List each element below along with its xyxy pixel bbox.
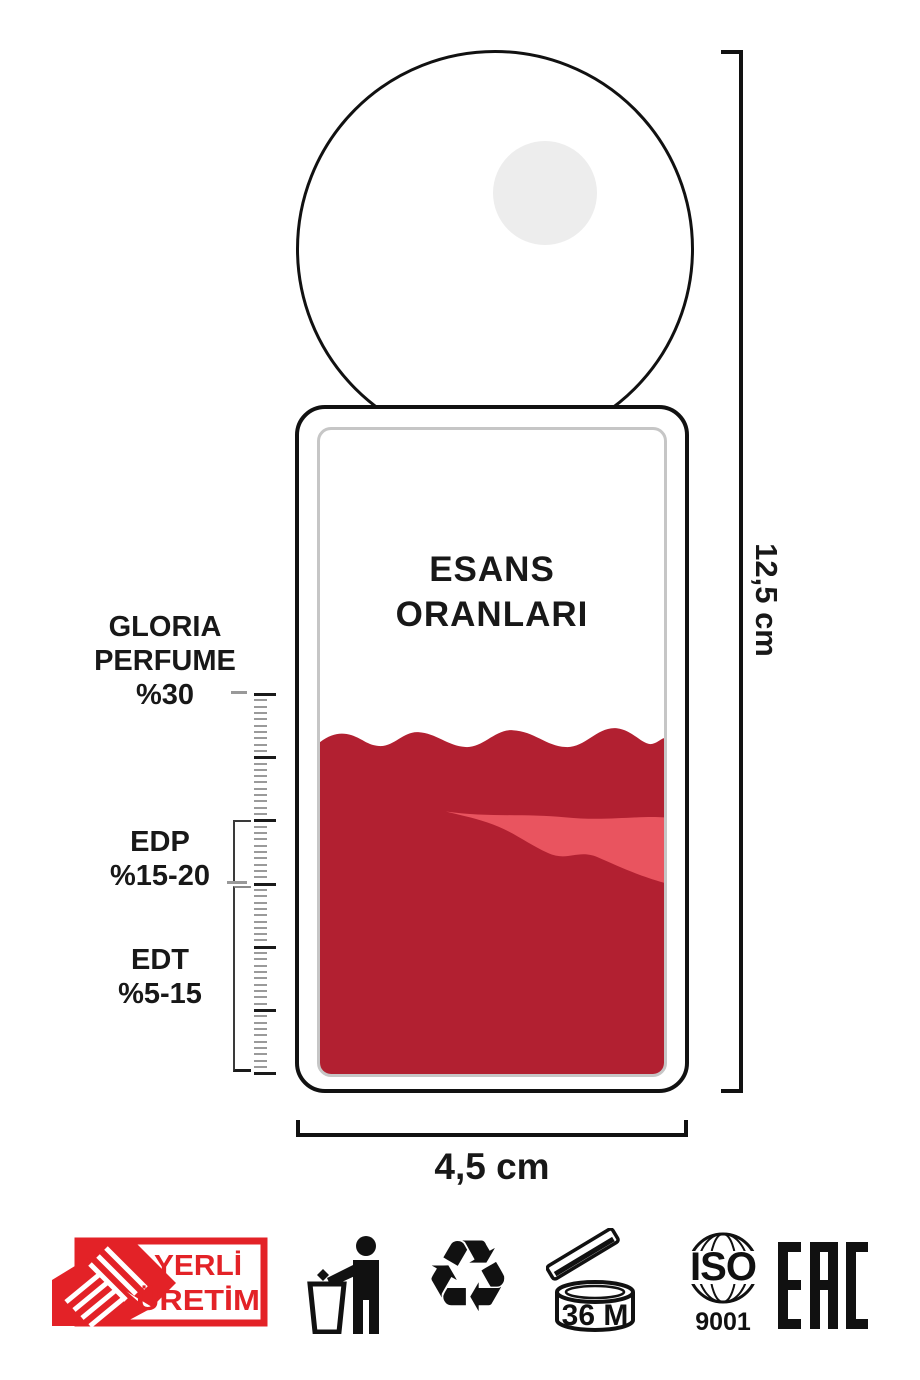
width-dimension-line: [296, 1133, 688, 1137]
ruler-tick: [254, 1028, 267, 1030]
ruler-tick: [254, 781, 267, 783]
ruler-tick: [254, 756, 276, 759]
liquid-graphic: [320, 430, 664, 1074]
bottle-body: ESANS ORANLARI: [295, 405, 689, 1093]
ruler-tick: [254, 902, 267, 904]
label-edt: EDT %5-15: [85, 943, 235, 1011]
bottle-title: ESANS ORANLARI: [299, 547, 685, 637]
ruler-tick: [254, 763, 267, 765]
label-gloria-perfume: GLORIA PERFUME %30: [85, 610, 245, 712]
ruler-tick: [254, 744, 267, 746]
edt-line-2: %5-15: [85, 977, 235, 1011]
bottle-inner-panel: [317, 427, 667, 1077]
ruler-tick: [254, 693, 276, 696]
ruler-tick: [254, 1009, 276, 1012]
ruler-tick: [254, 851, 267, 853]
ruler-tick: [254, 832, 267, 834]
ruler-tick: [254, 864, 267, 866]
ruler-tick: [254, 921, 267, 923]
ruler-tick: [254, 769, 267, 771]
ruler-tick: [254, 699, 267, 701]
perfume-ratio-infographic: ESANS ORANLARI GLORIA PERFUME %30 EDP %1…: [0, 0, 920, 1380]
ruler-tick: [254, 889, 267, 891]
ruler-tick: [254, 788, 267, 790]
ruler-tick: [254, 845, 267, 847]
ruler-tick: [254, 718, 267, 720]
ruler-tick: [254, 857, 267, 859]
ruler-tick: [254, 775, 267, 777]
ruler-tick: [254, 933, 267, 935]
gloria-line-2: PERFUME: [85, 644, 245, 678]
pao-lid: [546, 1228, 619, 1280]
ruler-tick: [254, 895, 267, 897]
height-dimension-cap-bottom: [721, 1089, 743, 1093]
ruler-tick: [254, 876, 267, 878]
ruler-tick: [254, 807, 267, 809]
ruler-tick: [254, 1053, 267, 1055]
height-dimension-label: 12,5 cm: [748, 543, 784, 657]
edp-range-bracket: [233, 820, 251, 881]
ruler-tick: [254, 984, 267, 986]
ruler-tick: [254, 977, 267, 979]
ruler-tick: [254, 1003, 267, 1005]
ruler-tick: [254, 712, 267, 714]
eac-logo: EAC: [778, 1242, 868, 1329]
iso-number: 9001: [695, 1308, 751, 1335]
height-dimension-cap-top: [721, 50, 743, 54]
iso-label: ISO: [690, 1245, 756, 1289]
ruler-tick: [254, 800, 267, 802]
ruler-tick: [254, 794, 267, 796]
width-dimension-cap-left: [296, 1120, 300, 1137]
edt-range-bracket: [233, 886, 251, 1072]
ruler-tick: [254, 1022, 267, 1024]
height-dimension-line: [739, 50, 743, 1093]
ruler-tick: [254, 939, 267, 941]
ruler-tick: [254, 750, 267, 752]
ruler-tick: [254, 731, 267, 733]
ruler-tick: [254, 1060, 267, 1062]
ruler-tick: [254, 908, 267, 910]
yerli-label: YERLİ: [154, 1250, 242, 1282]
ruler-tick: [254, 990, 267, 992]
pao-period-label: 36 M: [562, 1299, 629, 1332]
ruler-tick: [254, 1034, 267, 1036]
gloria-line-3: %30: [85, 678, 245, 712]
ruler-tick: [254, 838, 267, 840]
liquid-fill: [320, 728, 664, 1074]
iso-9001-icon: ISO 9001: [666, 1230, 781, 1335]
pao-36m-icon: 36 M: [546, 1228, 671, 1338]
ruler-tick: [254, 1047, 267, 1049]
ruler-tick: [254, 952, 267, 954]
tidy-man-icon: [303, 1234, 393, 1334]
ruler-tick: [254, 1066, 267, 1068]
width-dimension-label: 4,5 cm: [392, 1146, 592, 1188]
edp-line-2: %15-20: [85, 859, 235, 893]
ruler-ticks: [254, 693, 278, 1076]
ruler-tick: [254, 958, 267, 960]
ruler-tick: [254, 706, 267, 708]
gloria-line-1: GLORIA: [85, 610, 245, 644]
edp-line-1: EDP: [85, 825, 235, 859]
ruler-tick: [254, 819, 276, 822]
cap-highlight-circle: [493, 141, 597, 245]
ruler-tick: [254, 965, 267, 967]
ruler-tick: [254, 813, 267, 815]
ruler-tick: [254, 946, 276, 949]
width-dimension-cap-right: [684, 1120, 688, 1137]
label-edp: EDP %15-20: [85, 825, 235, 893]
ruler-tick: [254, 1041, 267, 1043]
ruler-tick: [254, 883, 276, 886]
edt-line-1: EDT: [85, 943, 235, 977]
ruler-tick: [254, 870, 267, 872]
recycle-icon: ♻: [413, 1222, 523, 1332]
yerli-uretim-badge: YERLİ ÜRETİM: [48, 1236, 270, 1330]
ruler-tick: [254, 996, 267, 998]
ruler-tick: [254, 725, 267, 727]
title-line-2: ORANLARI: [299, 592, 685, 637]
ruler-tick: [254, 914, 267, 916]
title-line-1: ESANS: [299, 547, 685, 592]
ruler-tick: [254, 1015, 267, 1017]
ruler-tick: [254, 1072, 276, 1075]
ruler-tick: [254, 927, 267, 929]
bottle-cap-circle: [296, 50, 694, 448]
ruler-tick: [254, 737, 267, 739]
ruler-tick: [254, 971, 267, 973]
ruler-tick: [254, 826, 267, 828]
uretim-label: ÜRETİM: [136, 1284, 260, 1317]
